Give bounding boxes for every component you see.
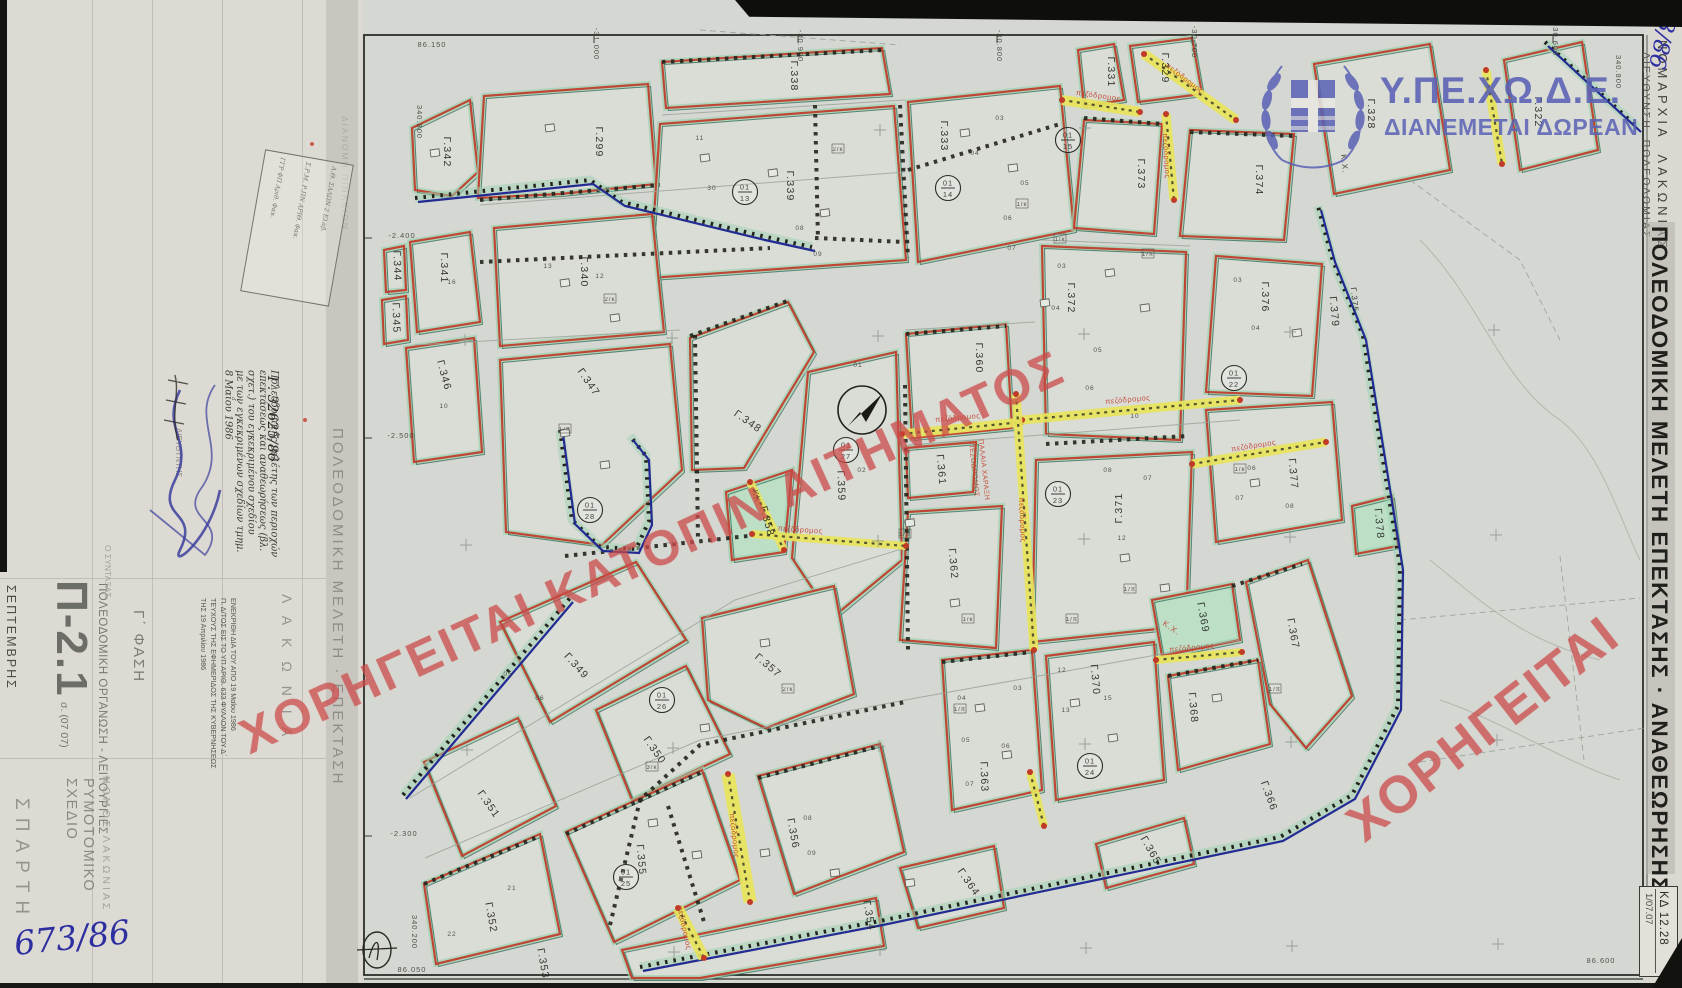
parcel-number: 04 [1251,325,1260,332]
building-footprint [950,599,960,607]
block-label-G371: Γ.371 [1113,492,1125,523]
parcel-number: 13 [543,263,552,270]
parcel-number: 09 [813,251,822,258]
ministry-logo: Υ.ΠΕ.ΧΩ.Δ.Ε. ΔΙΑΝΕΜΕΤΑΙ ΔΩΡΕΑΝ [1252,52,1672,167]
building-mark: 1/κ [962,617,973,623]
parcel-number: 04 [970,150,979,157]
frame-coordinate-label: 86.150 [418,40,447,49]
block-label-G333: Γ.333 [938,120,950,151]
parcel-number: 12 [595,273,604,280]
ratio-badge-den: 13 [740,194,750,203]
grid-cross [460,539,472,551]
frame-coordinate-label: -30.800 [995,30,1004,62]
parcel-number: 07 [965,781,974,788]
ratio-badge-den: 27 [841,452,851,461]
building-footprint [1292,329,1302,337]
building-footprint [1160,584,1170,592]
building-mark: 1/κ [1054,237,1065,243]
building-footprint [905,879,915,887]
building-footprint [1212,694,1222,702]
block-label-G339: Γ.339 [784,170,796,201]
block-label-G338: Γ.338 [788,60,800,91]
ratio-badge-num: 01 [585,501,595,510]
ratio-badge-den: 23 [1053,496,1063,505]
parcel-number: 06 [1001,743,1010,750]
parcel-number: 05 [1093,347,1102,354]
pedestrian-street-end [1141,51,1147,57]
pedestrian-street-end [1323,439,1329,445]
grid-cross [1488,324,1500,336]
building-footprint [692,851,702,859]
block-label-G372: Γ.372 [1065,282,1077,313]
scan-edge-left [0,0,7,572]
pedestrian-street-end [903,543,909,549]
parcel-boundary-dashed [1410,180,1560,340]
block-label-G373: Γ.373 [1135,158,1147,189]
building-footprint [760,639,770,647]
grid-cross [1286,940,1298,952]
city-block-G377 [1206,402,1342,542]
scanned-planning-map-sheet: { "document": { "file_number": "673/86",… [0,0,1682,988]
pedestrian-street-end [1013,391,1019,397]
parcel-number: 15 [1103,695,1112,702]
pedestrian-street-end [725,771,731,777]
building-footprint [960,129,970,137]
agency-name: Υ.ΠΕ.ΧΩ.Δ.Ε. [1380,70,1621,112]
parcel-number: 02 [857,467,866,474]
parcel-number: 08 [1285,503,1294,510]
building-mark: 2/κ [832,147,843,153]
frame-coordinate-label: -2.500 [387,431,414,440]
ratio-badge-num: 01 [1063,131,1073,140]
pedestrian-street-end [1171,197,1177,203]
parcel-number: 06 [1247,465,1256,472]
parcel-number: 06 [1085,385,1094,392]
pedestrian-street-end [747,899,753,905]
block-label-G344: Γ.344 [390,250,403,281]
building-mark: 2/κ [782,687,793,693]
parcel-number: 04 [957,695,966,702]
sheet-title: ΠΟΛΕΟΔΟΜΙΚΗ ΜΕΛΕΤΗ ΕΠΕΚΤΑΣΗΣ · ΑΝΑΘΕΩΡΗΣ… [1646,226,1672,872]
building-footprint [830,869,840,877]
ratio-badge-den: 15 [1063,142,1073,151]
agency-slogan: ΔΙΑΝΕΜΕΤΑΙ ΔΩΡΕΑΝ [1384,114,1638,141]
frame-coordinate-label: 86.600 [1587,956,1616,965]
building-footprint [700,154,710,162]
kd-code: ΚΔ 12.28 [1657,891,1669,973]
pedestrian-street-end [1237,397,1243,403]
city-block-G363 [942,650,1042,810]
block-label-G342: Γ.342 [441,136,453,167]
block-label-G376: Γ.376 [1259,281,1271,312]
pedestrian-street-end [1059,97,1065,103]
parcel-number: 08 [795,225,804,232]
building-footprint [1250,479,1260,487]
parcel-boundary-dashed [1560,556,1584,760]
block-label-G329: Γ.329 [1159,52,1171,83]
pedestrian-street-end [1041,823,1047,829]
building-mark: 1/π [559,427,571,433]
ratio-badge-num: 01 [621,868,631,877]
building-footprint [1070,699,1080,707]
parcel-number: 06 [535,695,544,702]
ratio-badge-den: 22 [1229,380,1239,389]
building-mark: 1/π [954,707,966,713]
pedestrian-street-end [781,547,787,553]
frame-coordinate-label: -31.000 [592,28,601,60]
parcel-number: 08 [803,815,812,822]
building-footprint [1008,164,1018,172]
building-mark: 2/κ [604,297,615,303]
block-label-G360: Γ.360 [973,342,985,373]
building-mark: 1/π [1142,252,1154,258]
block-label-G299: Γ.299 [593,126,605,157]
ratio-badge-num: 01 [740,183,750,192]
contour-line [1440,700,1620,780]
frame-coordinate-label: -30.700 [1190,26,1199,58]
building-mark: 3/κ [646,765,657,771]
parcel-number: 05 [503,671,512,678]
ratio-badge-num: 01 [943,179,953,188]
parcel-number: 10 [1130,413,1139,420]
contour-line [1420,240,1640,560]
city-block-G346 [406,338,482,462]
kd-divider [1655,889,1656,973]
pedestrian-street-end [1189,461,1195,467]
parcel-number: 13 [1061,707,1070,714]
building-mark: 1/π [1066,617,1078,623]
parcel-boundary-dashed [1400,598,1640,620]
frame-coordinate-label: -2.400 [388,231,415,240]
ratio-badge-num: 01 [657,691,667,700]
contour-line [1430,560,1600,660]
parcel-number: 03 [1057,263,1066,270]
frame-coordinate-label: -2.300 [390,829,417,838]
block-label-G345: Γ.345 [389,302,402,333]
building-footprint [545,124,555,132]
grid-cross [872,330,884,342]
block-label: Γ.379 [1327,296,1342,328]
parcel-number: 03 [995,115,1004,122]
parcel-number: 08 [1103,467,1112,474]
ratio-badge-num: 01 [1085,757,1095,766]
pedestrian-street-end [1239,649,1245,655]
kd-code-sub: 1/07.07 [1643,893,1654,971]
scan-edge-bottom [0,983,1682,988]
pedestrian-street-end [899,431,905,437]
pedestrian-street-end [1137,109,1143,115]
pedestrian-street-end [1031,647,1037,653]
block-label-G340: Γ.340 [578,256,590,287]
building-footprint [905,519,915,527]
parcel-number: 07 [1143,475,1152,482]
parcel-number: 10 [439,403,448,410]
ratio-badge-num: 01 [1229,369,1239,378]
grid-cross [1080,942,1092,954]
building-footprint [1040,299,1050,307]
ratio-badge-den: 14 [943,190,953,199]
frame-coordinate-label: 86.050 [398,965,427,974]
pedestrian-street-end [701,955,707,961]
building-footprint [1105,269,1115,277]
ratio-badge-den: 25 [621,879,631,888]
ratio-badge-den: 28 [585,512,595,521]
pedestrian-street-end [747,479,753,485]
frame-coordinate-label: 340.800 [415,105,424,139]
ratio-badge-num: 01 [1053,485,1063,494]
parcel-number: 09 [807,850,816,857]
building-mark: 1/κ [1234,467,1245,473]
pedestrian-street-label: πεζόδρομος [1017,497,1028,543]
ministry-emblem-icon [1252,52,1374,174]
building-footprint [1108,734,1118,742]
ratio-badge-num: 01 [841,441,851,450]
building-mark: 1/κ [1016,202,1027,208]
building-footprint [975,704,985,712]
grid-cross [1491,734,1503,746]
block-label-G359: Γ.359 [834,470,847,501]
parcel-number: 03 [1013,685,1022,692]
pedestrian-street-end [1153,657,1159,663]
parcel-boundary-dashed [1420,728,1645,762]
ratio-badge-den: 26 [657,702,667,711]
building-footprint [1140,304,1150,312]
block-label-G341: Γ.341 [438,252,450,283]
ratio-badge-den: 24 [1085,768,1095,777]
building-footprint [820,209,830,217]
grid-cross [1492,938,1504,950]
building-mark: 1/π [899,532,911,538]
pedestrian-street-label: πεζόδρομος [1161,133,1172,179]
building-mark: 1/π [1124,587,1136,593]
parcel-number: 03 [1233,277,1242,284]
frame-coordinate-label: 340.200 [410,915,419,949]
block-label-G331: Γ.331 [1105,56,1117,87]
parcel-number: 12 [1057,667,1066,674]
building-footprint [648,819,658,827]
building-footprint [760,849,770,857]
building-footprint [430,149,440,157]
building-footprint [560,279,570,287]
building-footprint [1120,554,1130,562]
city-block-G370 [1046,642,1164,800]
pedestrian-street-end [1027,769,1033,775]
parcel-number: 22 [447,931,456,938]
parcel-number: 06 [1003,215,1012,222]
building-footprint [610,314,620,322]
building-footprint [1002,751,1012,759]
parcel-number: 07 [1007,245,1016,252]
parcel-number: 01 [853,362,862,369]
block-label: Γ.366 [1258,779,1280,812]
block-label-G363: Γ.363 [977,761,990,792]
parcel-number: 05 [1020,180,1029,187]
building-mark: 1/π [1269,687,1281,693]
parcel-number: 04 [1051,305,1060,312]
parcel-number: 12 [1117,535,1126,542]
building-footprint [600,461,610,469]
parcel-number: 05 [961,737,970,744]
pedestrian-street-end [1163,111,1169,117]
parcel-number: 07 [1235,495,1244,502]
city-block-G373 [1074,120,1162,234]
parcel-number: 21 [507,885,516,892]
frame-coordinate-label: -30.900 [796,30,805,62]
building-footprint [768,169,778,177]
parcel-number: 30 [707,185,716,192]
building-footprint [700,724,710,732]
pedestrian-street-end [749,531,755,537]
grid-cross [666,537,678,549]
parcel-number: 11 [696,135,705,142]
grid-cross [1490,529,1502,541]
pedestrian-street-end [1233,117,1239,123]
